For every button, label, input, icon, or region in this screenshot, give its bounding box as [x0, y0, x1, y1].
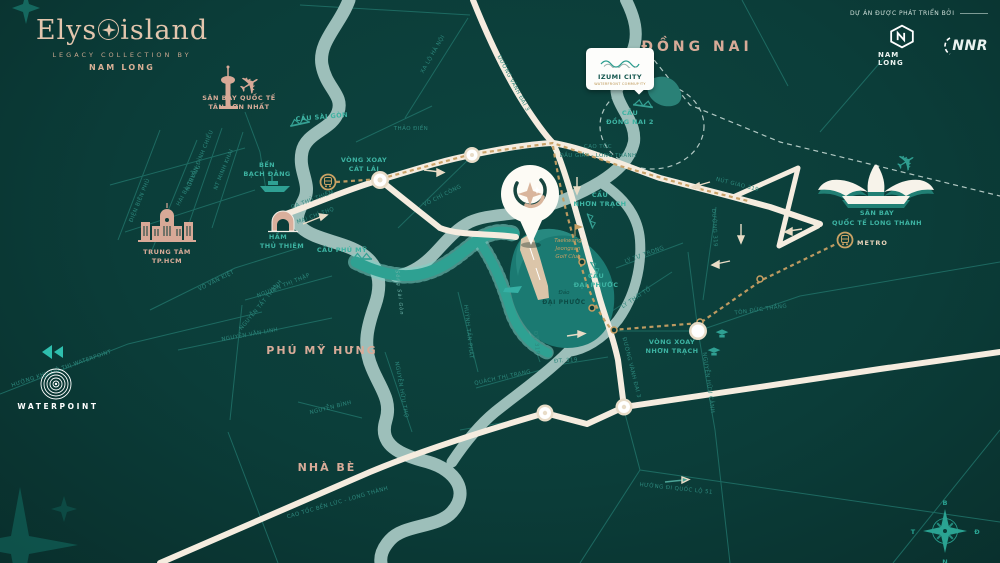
compass-rose: B Đ N T — [911, 499, 980, 563]
izumi-title: IZUMI CITY — [588, 73, 652, 81]
label-nut-giao-319: NÚT GIAO 319 — [715, 176, 760, 194]
hcmc-center-building — [138, 203, 196, 242]
developer-block: DỰ ÁN ĐƯỢC PHÁT TRIỂN BỞI NAM LONG NNR — [850, 10, 988, 67]
label-xa-lo-ha-noi: XA LỘ HÀ NỘI — [419, 34, 447, 75]
compass-east: Đ — [974, 528, 980, 536]
label-thao-dien: THẢO ĐIỀN — [393, 124, 428, 132]
long-thanh-airport: ✈ — [818, 145, 934, 208]
label-cau-phu-my: CẦU PHÚ MỸ — [317, 244, 367, 254]
node-an-phu — [464, 147, 480, 163]
label-vo-van-kiet: VÕ VĂN KIỆT — [197, 268, 236, 293]
label-cau-dong-nai-2a: CẦU — [622, 107, 638, 117]
node-cat-lai — [371, 171, 389, 189]
compass-south: N — [942, 558, 947, 563]
label-vong-xoay-cat-lai-2: CÁT LÁI — [349, 164, 379, 173]
compass-west: T — [911, 528, 916, 536]
label-vong-xoay-cat-lai-1: VÒNG XOAY — [341, 155, 387, 164]
saigon-river — [298, 0, 461, 563]
izumi-city-card: IZUMI CITY WATERFRONT COMMUNITY — [586, 48, 654, 90]
brand-logo: Elysisland LEGACY COLLECTION BY NAM LONG — [24, 16, 220, 72]
cau-dong-nai-2-icon — [633, 99, 654, 107]
node-blt-west — [537, 405, 554, 422]
label-ton-duc-thang: TÔN ĐỨC THẮNG — [733, 301, 788, 316]
label-vo-chi-cong: VÕ CHÍ CÔNG — [422, 183, 463, 208]
nam-long-logo-icon — [889, 24, 915, 49]
label-ben: BẾN — [259, 159, 275, 169]
label-metro: METRO — [857, 239, 888, 247]
label-vanh-dai-3a: ĐƯỜNG VÀNH ĐAI 3 — [496, 54, 532, 113]
nam-long-label: NAM LONG — [878, 51, 926, 67]
compass-north: B — [943, 499, 948, 507]
metro-long-thanh-icon — [838, 233, 853, 248]
label-vong-xoay-nhon-trach-a: VÒNG XOAY — [649, 337, 695, 346]
location-map-poster: ✈ — [0, 0, 1000, 563]
label-nguyen-thi-thap: NGUYỄN THỊ THẬP — [256, 271, 312, 300]
label-vong-xoay-nhon-trach-b: NHƠN TRẠCH — [646, 347, 699, 355]
label-bach-dang: BẠCH ĐẰNG — [243, 168, 290, 178]
boundary-dashes — [600, 46, 1000, 196]
label-huynh-tan-phat: HUỲNH TẤN PHÁT — [462, 304, 476, 359]
star-motif — [0, 0, 78, 563]
waterpoint-label: WATERPOINT — [17, 402, 98, 411]
star-icon — [102, 23, 116, 37]
label-cau-dai-phuoc-a: CẦU — [588, 270, 604, 280]
school-icon — [716, 329, 729, 337]
label-cau-dai-phuoc-b: ĐẠI PHƯỚC — [574, 280, 619, 289]
label-cao-toc-dglt-a: CAO TỐC — [584, 142, 612, 150]
map-canvas: ✈ — [0, 0, 1000, 563]
label-huong-di-ql51: HƯỚNG ĐI QUỐC LỘ 51 — [639, 480, 713, 496]
divider-line — [960, 13, 988, 14]
label-san-bay-long-thanh-b: QUỐC TẾ LONG THÀNH — [832, 217, 922, 227]
label-nguyen-van-linh: NGUYỄN VĂN LINH — [221, 325, 279, 343]
label-san-bay-long-thanh-a: SÂN BAY — [860, 208, 894, 217]
label-san-bay-quoc-te: SÂN BAY QUỐC TẾ — [202, 92, 276, 102]
metro-thu-thiem-icon — [321, 175, 336, 190]
label-dong-nai: ĐỒNG NAI — [641, 36, 752, 55]
airplane-icon: ✈ — [890, 145, 922, 179]
label-nt-minh-khai: NT MINH KHAI — [213, 148, 235, 191]
label-cao-toc-dglt-b: DẦU GIÂY - LONG THÀNH — [559, 151, 636, 159]
label-tphcm: TP.HCM — [152, 257, 182, 265]
brand-developer: NAM LONG — [24, 63, 220, 72]
label-cau-nhon-trach-b: NHƠN TRẠCH — [574, 200, 627, 208]
brand-title: Elysisland — [24, 16, 220, 46]
label-dai-phuoc: ĐẠI PHƯỚC — [542, 299, 585, 306]
nnr-logo-icon — [942, 36, 952, 56]
label-phu-my-hung: PHÚ MỸ HƯNG — [266, 344, 377, 357]
label-golf-2: Jeongsan — [554, 246, 581, 252]
izumi-waves-icon — [598, 57, 642, 68]
label-tan-son-nhat: TÂN SƠN NHẤT — [208, 101, 269, 111]
road-ben-luc-long-thanh — [160, 352, 1000, 563]
node-blt-east — [616, 399, 633, 416]
brand-tagline: LEGACY COLLECTION BY — [24, 51, 220, 59]
label-ham: HẦM — [269, 231, 287, 241]
label-golf-1: Taekwang — [554, 238, 582, 244]
label-golf-3: Golf Club — [555, 254, 581, 260]
label-thu-thiem: THỦ THIÊM — [260, 240, 304, 250]
label-cau-nhon-trach-a: CẦU — [592, 189, 608, 199]
label-trung-tam: TRUNG TÂM — [143, 247, 191, 256]
nam-long-logo: NAM LONG — [878, 24, 926, 67]
developer-heading: DỰ ÁN ĐƯỢC PHÁT TRIỂN BỞI — [850, 10, 955, 17]
label-nguyen-binh: NGUYỄN BÌNH — [309, 398, 353, 416]
label-cau-dong-nai-2b: ĐỒNG NAI 2 — [606, 116, 654, 126]
label-dt319b: ĐT. 319 — [554, 357, 578, 365]
waterpoint-chevrons-icon — [42, 345, 63, 359]
nnr-logo: NNR — [942, 36, 988, 56]
brand-orb-icon — [98, 19, 119, 40]
waterpoint-logo: WATERPOINT — [17, 369, 98, 411]
label-dao: Đảo — [559, 289, 571, 296]
izumi-subtitle: WATERFRONT COMMUNITY — [588, 82, 652, 86]
school-icon — [708, 347, 721, 355]
nnr-label: NNR — [952, 38, 988, 54]
label-nguyen-huu-tho: NGUYỄN HỮU THỌ — [393, 361, 411, 419]
cau-nhon-trach-icon — [587, 212, 597, 229]
label-nguyen-huu-canh: NGUYỄN HỮU CẢNH — [701, 352, 717, 414]
label-nha-be: NHÀ BÈ — [298, 461, 357, 474]
label-nguyen-dinh-chieu: NGUYỄN ĐÌNH CHIỂU — [183, 129, 215, 192]
